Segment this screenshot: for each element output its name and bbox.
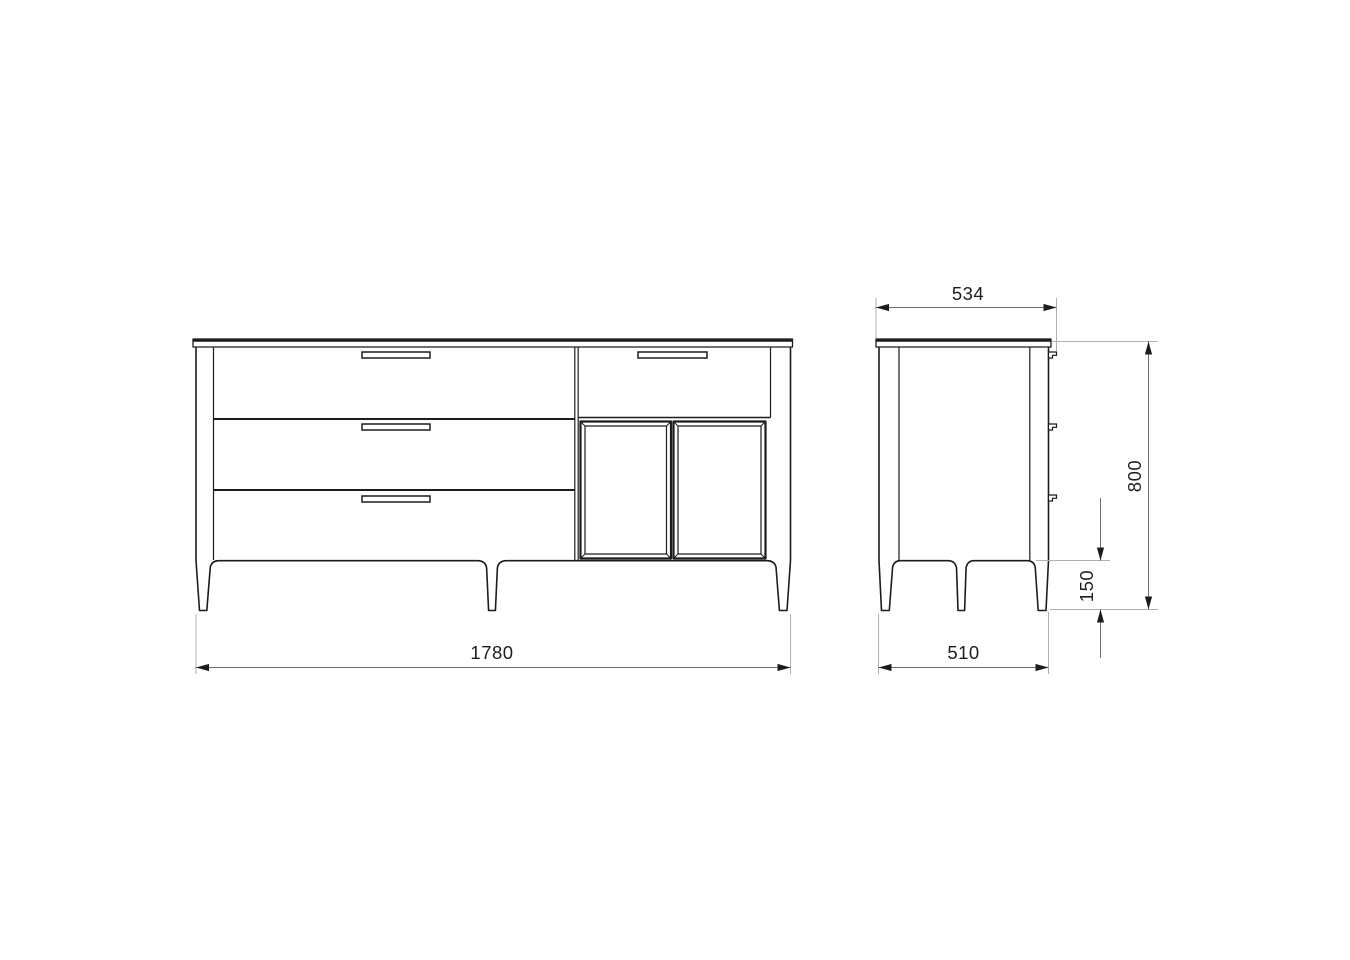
side-handle-profile-3	[1049, 495, 1057, 501]
side-bottom-depth-dimension: 510	[879, 612, 1049, 674]
front-view: 1780	[193, 339, 793, 674]
drawer-handle-1	[362, 352, 430, 358]
arrow-left-icon	[879, 664, 892, 671]
front-width-label: 1780	[470, 642, 513, 663]
side-handle-profile-1	[1049, 352, 1057, 358]
front-top-panel	[193, 339, 793, 347]
side-height-label: 800	[1124, 460, 1145, 492]
arrow-down-icon	[1097, 548, 1104, 561]
side-leg-height-label: 150	[1076, 570, 1097, 602]
side-height-dimension: 800	[1050, 342, 1158, 610]
front-width-dimension: 1780	[196, 614, 791, 674]
arrow-up-icon	[1145, 342, 1152, 355]
left-door	[581, 422, 672, 559]
side-carcass-and-legs	[879, 347, 1049, 611]
arrow-left-icon	[196, 664, 209, 671]
arrow-down-icon	[1145, 597, 1152, 610]
arrow-right-icon	[778, 664, 791, 671]
side-bottom-depth-label: 510	[947, 642, 979, 663]
front-carcass-and-legs	[196, 347, 791, 611]
arrow-left-icon	[876, 304, 889, 311]
side-handle-profile-2	[1049, 424, 1057, 430]
arrow-right-icon	[1044, 304, 1057, 311]
right-door	[674, 422, 766, 559]
arrow-right-icon	[1036, 664, 1049, 671]
technical-drawing: 1780 534	[0, 0, 1350, 960]
side-top-panel	[876, 339, 1051, 347]
arrow-up-icon	[1097, 610, 1104, 623]
drawer-handle-top-right	[638, 352, 707, 358]
drawing-canvas: 1780 534	[0, 0, 1350, 960]
drawer-handle-2	[362, 424, 430, 430]
drawer-handle-3	[362, 496, 430, 502]
side-top-depth-label: 534	[952, 283, 984, 304]
side-view: 534 800 150 510	[876, 283, 1158, 674]
